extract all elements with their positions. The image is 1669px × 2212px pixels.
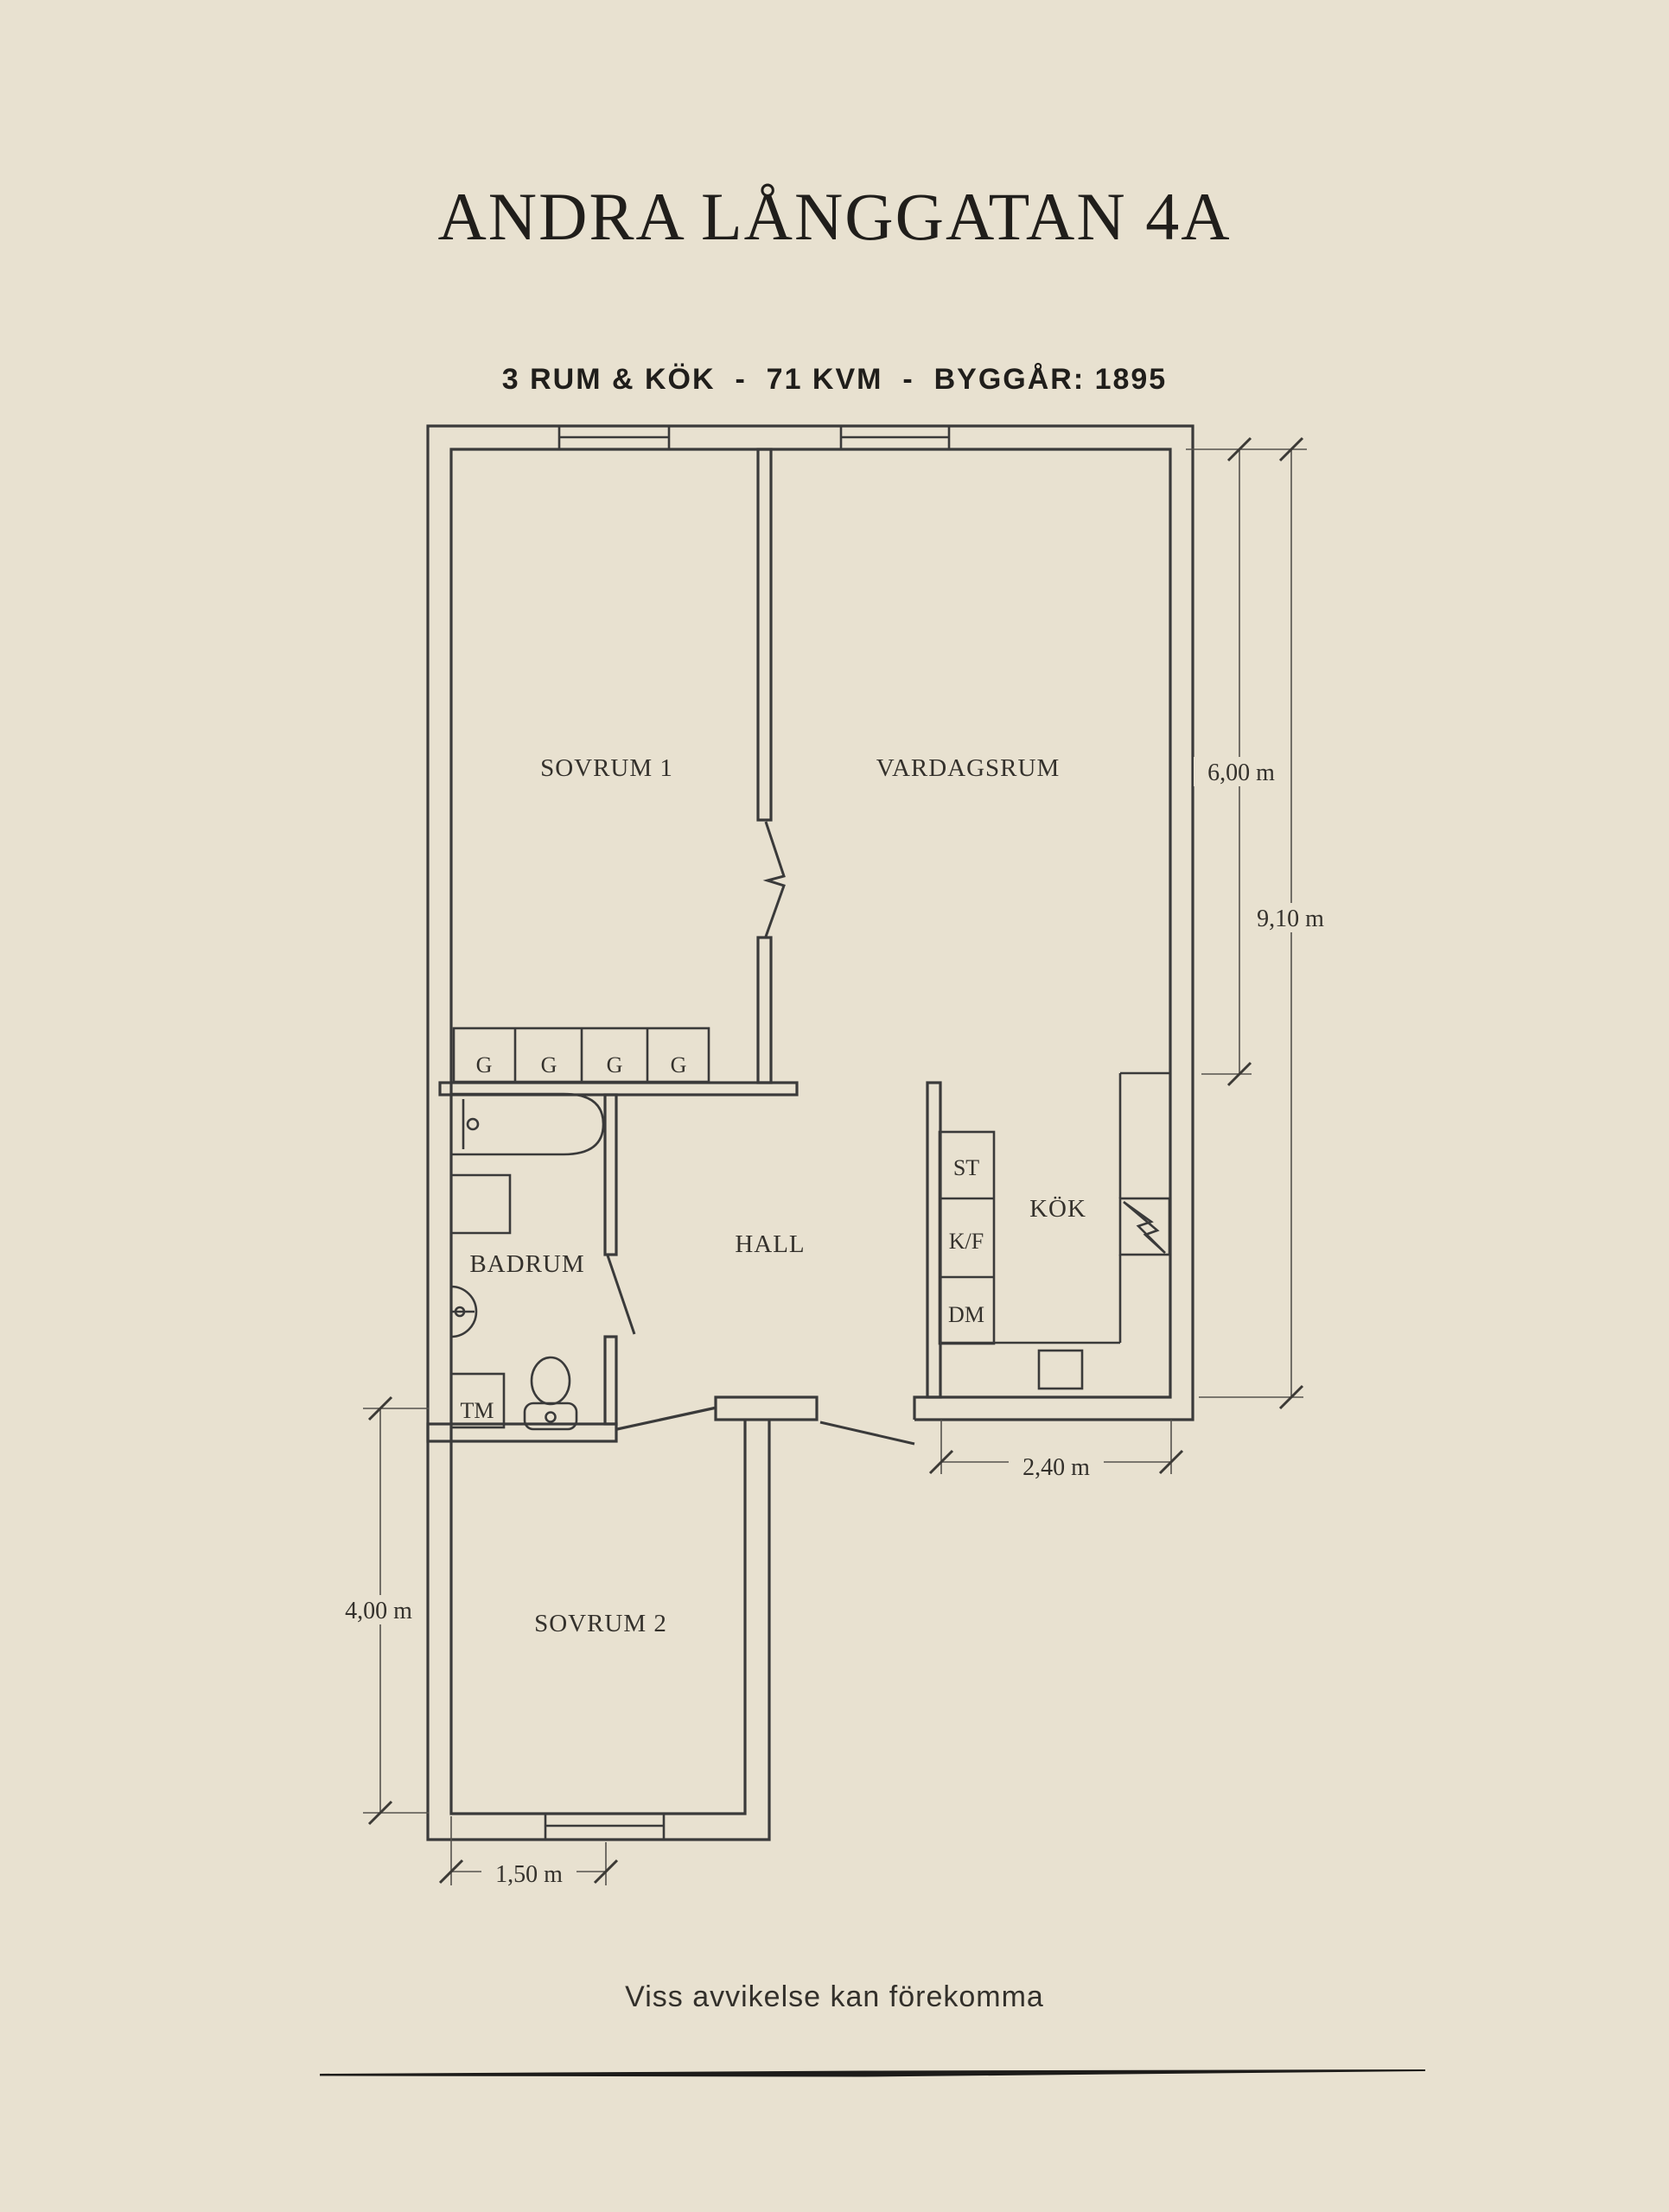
bathtub [451, 1094, 603, 1154]
window-livingroom [841, 427, 949, 448]
wardrobe-dividers [515, 1028, 647, 1082]
entry-door-leaf [820, 1422, 914, 1444]
washing-machine: TM [451, 1374, 504, 1427]
pantry-label: ST [953, 1155, 979, 1180]
hall-bottom-wall [716, 1397, 817, 1420]
dishwasher-label: DM [948, 1302, 984, 1327]
disclaimer-text: Viss avvikelse kan förekomma [0, 1980, 1669, 2014]
window-bedroom1 [559, 427, 669, 448]
closet-label-4: G [671, 1052, 687, 1077]
room-label-badrum: BADRUM [469, 1250, 584, 1278]
closet-label-2: G [541, 1052, 557, 1077]
dimension-lines [363, 449, 1307, 1885]
dimension-living-room-height: 6,00 m [1207, 760, 1275, 786]
closet-label-3: G [607, 1052, 623, 1077]
washing-machine-label: TM [461, 1398, 494, 1423]
dimension-bedroom2-window: 1,50 m [495, 1861, 563, 1888]
doors [608, 822, 914, 1444]
stove-box [1120, 1198, 1169, 1255]
room-label-sovrum1: SOVRUM 1 [540, 754, 673, 782]
bathroom-right-wall-upper [605, 1095, 616, 1255]
dimensions: 6,00 m 9,10 m 2,40 m 4,00 m 1,50 m [331, 438, 1338, 1888]
floorplan-drawing: G G G G TM [0, 0, 1669, 2212]
wash-basin [451, 1287, 476, 1337]
toilet-button [546, 1413, 556, 1422]
bedroom1-wall-upper [758, 449, 771, 820]
dimension-right-side-total: 9,10 m [1257, 906, 1324, 932]
bathtub-outline [451, 1094, 603, 1154]
toilet [525, 1357, 577, 1429]
room-label-vardagsrum: VARDAGSRUM [876, 754, 1061, 782]
bathtub-faucet [468, 1119, 478, 1129]
kitchen-appliances: ST K/F DM [940, 1132, 1120, 1389]
window-bedroom2 [545, 1815, 664, 1839]
entry-diagonal-wall [617, 1408, 717, 1429]
wardrobe-row: G G G G [454, 1028, 709, 1082]
fixtures: G G G G TM [451, 1028, 1169, 1429]
footer-divider-line [320, 2069, 1425, 2077]
bathroom-door-leaf [608, 1255, 634, 1334]
french-door-leaves [766, 822, 784, 937]
kitchen-sink [1039, 1351, 1082, 1389]
kitchen-recess-wall [1120, 1073, 1170, 1343]
bathroom-shaft [451, 1175, 510, 1233]
dimension-kitchen-width: 2,40 m [1022, 1454, 1090, 1481]
room-label-hall: HALL [735, 1230, 805, 1258]
toilet-bowl [532, 1357, 570, 1404]
lightning-bolt-icon [1124, 1202, 1165, 1253]
bathroom-right-wall-lower [605, 1337, 616, 1424]
stove [1120, 1198, 1169, 1255]
room-label-kok: KÖK [1029, 1195, 1086, 1223]
bedroom1-wall-lower [758, 938, 771, 1083]
fridge-freezer-label: K/F [949, 1229, 984, 1254]
floorplan-page: ANDRA LÅNGGATAN 4A 3 RUM & KÖK - 71 KVM … [0, 0, 1669, 2212]
room-label-sovrum2: SOVRUM 2 [534, 1610, 667, 1637]
closet-label-1: G [476, 1052, 493, 1077]
dimension-ticks [369, 438, 1303, 1883]
dimension-bedroom2-height: 4,00 m [345, 1598, 412, 1624]
